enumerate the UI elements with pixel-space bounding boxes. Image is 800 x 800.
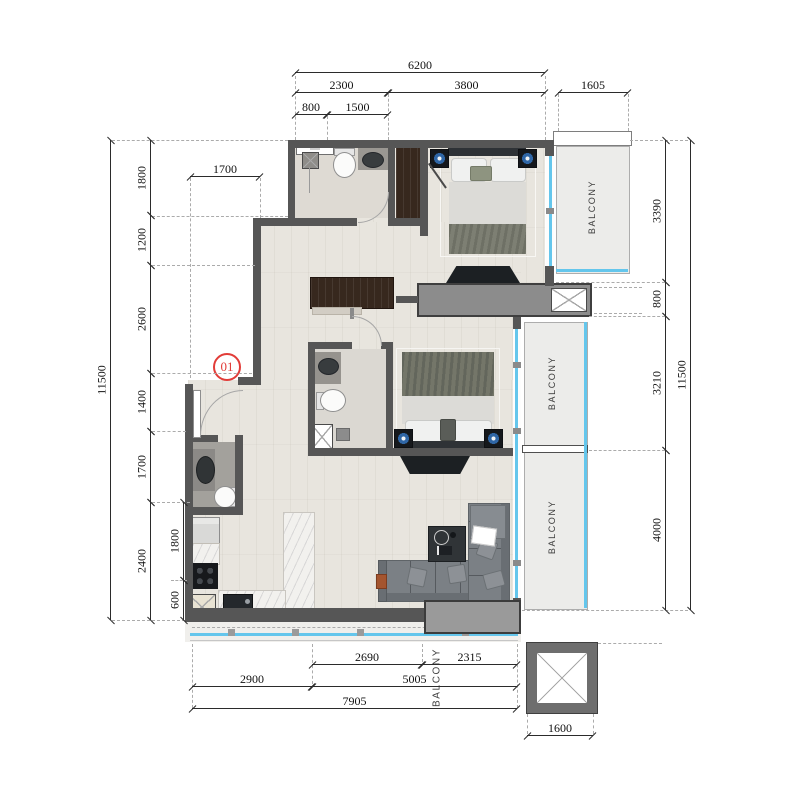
wall-bath1-divider: [388, 148, 395, 222]
balcony-parapet: [553, 131, 632, 146]
wall-bed1-right-stub-top: [545, 140, 554, 156]
dim-label: 5005: [312, 672, 517, 687]
extension-line: [630, 140, 688, 141]
toilet-icon: [214, 486, 236, 508]
dim-label: 3800: [388, 78, 545, 93]
dimension: 3390: [665, 140, 666, 282]
wall-entry-stub: [238, 377, 261, 385]
wall-bath2-left: [308, 342, 315, 455]
magazine: [471, 525, 497, 546]
planter-box: [424, 600, 521, 634]
extension-line: [152, 265, 255, 266]
dimension: 2690: [312, 664, 422, 665]
coffee-table-book: [437, 546, 452, 555]
shower-drain-line: [309, 167, 310, 193]
extension-line: [112, 140, 288, 141]
balcony-label-top-right: BALCONY: [587, 162, 597, 252]
island-counter-vertical: [283, 512, 315, 615]
extension-line: [152, 216, 288, 217]
dimension-bottom-total: 7905: [192, 708, 517, 709]
extension-line: [152, 373, 252, 374]
toilet-icon: [333, 152, 356, 178]
dim-label: 800: [650, 290, 665, 308]
wall-glazing-stub-top: [513, 317, 521, 329]
dim-label: 800: [295, 100, 327, 115]
nightstand-speaker-icon: [430, 149, 449, 168]
extension-line: [388, 94, 389, 140]
dim-label: 4000: [650, 518, 665, 542]
wall-bath1-left: [288, 148, 295, 226]
dim-label: 11500: [95, 365, 110, 395]
partition-shaft: [551, 288, 587, 312]
dim-label: 1600: [527, 721, 593, 736]
wall-bath2-top: [315, 342, 352, 349]
dimension: 1800: [183, 502, 184, 580]
elevator-shaft: [527, 643, 597, 713]
extension-line: [598, 643, 662, 644]
dim-label: 3390: [650, 199, 665, 223]
dimension: 1500: [327, 114, 388, 115]
balcony-right-glass: [584, 322, 587, 608]
extension-line: [190, 178, 191, 378]
dim-label: 1605: [558, 78, 628, 93]
coffee-table-tray-icon: [434, 530, 449, 545]
extension-line: [112, 620, 185, 621]
dim-label: 1700: [135, 455, 150, 479]
floor-plan-canvas: 01 BALCONY BALCONY BALCONY BALCONY 6200 …: [0, 0, 800, 800]
window-mullion: [513, 362, 521, 368]
extension-line: [589, 450, 665, 451]
wall-hall-left: [253, 226, 261, 384]
dim-label: 1200: [135, 228, 150, 252]
nightstand-speaker-icon: [394, 429, 413, 448]
extension-line: [327, 116, 328, 140]
dim-label: 2400: [135, 549, 150, 573]
bed2-blanket: [402, 352, 494, 396]
dimension: 800: [665, 282, 666, 316]
balcony-label-lower-right: BALCONY: [547, 482, 557, 572]
bed1-blanket: [449, 224, 526, 254]
shower-head-icon: [302, 152, 319, 169]
nightstand-speaker-icon: [518, 149, 537, 168]
extension-line: [628, 94, 629, 131]
wall-living-top: [308, 448, 517, 456]
dim-label: 2900: [192, 672, 312, 687]
dimension: 4000: [665, 450, 666, 610]
coffee-table-item: [450, 532, 456, 538]
balcony-rail-edge: [190, 640, 518, 641]
dimension: 2400: [150, 502, 151, 620]
balcony1-glass-bottom: [556, 269, 628, 272]
nightstand-speaker-icon: [484, 429, 503, 448]
dim-label: 1800: [168, 529, 183, 553]
dim-label: 6200: [295, 58, 545, 73]
sink-icon: [318, 358, 339, 375]
sink-icon: [362, 152, 384, 168]
tv-bedroom1: [446, 266, 520, 283]
extension-line: [556, 282, 665, 283]
dim-label: 2600: [135, 307, 150, 331]
side-table-accent: [376, 574, 387, 589]
dimension: 5005: [312, 686, 517, 687]
sofa-pillow: [406, 566, 427, 587]
balcony-divider: [522, 445, 588, 453]
bed2-accent-pillow: [440, 419, 456, 441]
dim-label: 600: [168, 591, 183, 609]
dim-label: 2690: [312, 650, 422, 665]
island-faucet-icon: [245, 599, 250, 604]
dim-label: 1800: [135, 166, 150, 190]
window-mullion: [513, 428, 521, 434]
dimension: 1605: [558, 92, 628, 93]
dimension: 2600: [150, 265, 151, 373]
wall-bar-stub: [396, 296, 418, 303]
rail-mullion: [228, 629, 235, 636]
dimension: 1400: [150, 373, 151, 431]
dimension: 1800: [150, 140, 151, 215]
extension-line: [260, 178, 261, 218]
desk: [310, 277, 394, 309]
dimension: 1700: [190, 176, 260, 177]
dimension: 800: [295, 114, 327, 115]
tv-living: [400, 456, 470, 474]
dimension: 1600: [527, 735, 593, 736]
cooktop-icon: [192, 563, 218, 589]
dim-label: 2300: [295, 78, 388, 93]
bed1-headboard: [448, 148, 526, 156]
fridge: [192, 517, 220, 545]
extension-line: [594, 287, 642, 288]
dim-label: 2315: [422, 650, 517, 665]
dimension: 2315: [422, 664, 517, 665]
wall-bath2-right: [386, 349, 393, 455]
dimension: 1700: [150, 431, 151, 502]
kitchen-counter: [192, 543, 220, 565]
extension-line: [558, 94, 559, 131]
window-mullion: [546, 208, 554, 214]
dimension-right-total: 11500: [690, 140, 691, 610]
dimension: 600: [183, 580, 184, 620]
dimension: 3800: [388, 92, 545, 93]
desk-shelf: [312, 307, 362, 315]
extension-line: [517, 644, 518, 708]
dim-label: 1500: [327, 100, 388, 115]
bath2-fixture-icon: [336, 428, 350, 441]
wall-bath3-right: [235, 435, 243, 515]
dim-label: 3210: [650, 371, 665, 395]
wall-bed1-right-stub-bottom: [545, 266, 554, 286]
dim-label: 1700: [190, 162, 260, 177]
rail-mullion: [357, 629, 364, 636]
unit-number-marker: 01: [213, 353, 241, 381]
extension-line: [594, 313, 642, 314]
dimension: 2300: [295, 92, 388, 93]
toilet-icon: [320, 389, 346, 412]
coffee-table: [428, 526, 466, 562]
sink-icon: [196, 456, 215, 484]
extension-line: [522, 610, 688, 611]
balcony-label-middle-right: BALCONY: [547, 338, 557, 428]
dim-label: 1400: [135, 390, 150, 414]
wall-step: [253, 218, 357, 226]
wall-bath2-top-stub: [381, 342, 393, 349]
dimension-top-total: 6200: [295, 72, 545, 73]
dimension: 2900: [192, 686, 312, 687]
dim-label: 7905: [192, 694, 517, 709]
wall-bedroom1-divider: [420, 148, 428, 236]
window-glass-living: [515, 329, 518, 598]
extension-line: [589, 316, 665, 317]
window-mullion: [513, 560, 521, 566]
sofa-pillow: [447, 564, 468, 585]
wardrobe: [396, 148, 420, 222]
bed1-accent-pillow: [470, 166, 492, 181]
dimension: 1200: [150, 215, 151, 265]
dimension: 3210: [665, 316, 666, 450]
extension-line: [593, 714, 594, 734]
wall-top: [288, 140, 552, 148]
extension-line: [545, 76, 546, 140]
dimension-left-total: 11500: [110, 140, 111, 620]
dim-label: 11500: [675, 360, 690, 390]
wall-bath3-bottom: [185, 507, 243, 515]
bed1-sheet: [449, 182, 526, 224]
rail-mullion: [292, 629, 299, 636]
extension-line: [152, 431, 186, 432]
